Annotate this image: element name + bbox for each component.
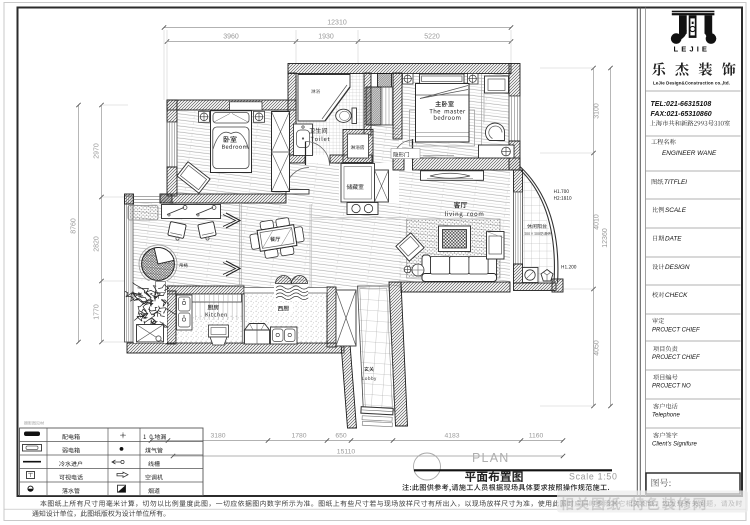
svg-text:4050: 4050 [594,340,601,356]
svg-text:DESIGN: DESIGN [665,264,690,271]
svg-text:PROJECT CHIEF: PROJECT CHIEF [652,328,700,334]
svg-text:Client's Signifure: Client's Signifure [652,442,697,448]
svg-text:8760: 8760 [71,218,78,234]
svg-text:3960: 3960 [223,34,239,41]
svg-text:12360: 12360 [602,228,609,248]
svg-text:1780: 1780 [291,433,306,440]
svg-text:CHECK: CHECK [665,292,688,299]
svg-text:PROJECT NO: PROJECT NO [652,384,691,390]
svg-text:4183: 4183 [444,433,459,440]
svg-text:SCALE: SCALE [665,207,687,214]
svg-text:1770: 1770 [94,304,101,320]
svg-text:4010: 4010 [594,214,601,230]
svg-text:LeJie Design&Construction co.: LeJie Design&Construction co.,ltd. [653,81,730,86]
svg-text:3100: 3100 [594,103,601,119]
svg-text:TEL:021-66315108: TEL:021-66315108 [651,101,712,108]
svg-text:TITFLEI: TITFLEI [664,179,687,186]
svg-text:PROJECT CHIEF: PROJECT CHIEF [652,355,700,361]
svg-text:650: 650 [335,433,347,440]
svg-text:2820: 2820 [94,236,101,252]
svg-text:3180: 3180 [210,433,225,440]
svg-text:LEJIE: LEJIE [674,44,711,53]
svg-text:Scale 1:50: Scale 1:50 [569,472,618,482]
svg-text:12310: 12310 [327,20,347,27]
svg-text:1160: 1160 [529,433,544,440]
svg-text:ENGINEER WANE: ENGINEER WANE [662,150,717,157]
svg-text:2970: 2970 [94,143,101,159]
svg-text:FAX:021-65310860: FAX:021-65310860 [651,111,712,118]
svg-text:PLAN: PLAN [472,451,509,465]
svg-text:DATE: DATE [665,236,682,243]
svg-text:5220: 5220 [424,34,440,41]
svg-text:15110: 15110 [337,449,356,456]
svg-text:Telephone: Telephone [652,413,680,419]
svg-text:1930: 1930 [318,34,334,41]
